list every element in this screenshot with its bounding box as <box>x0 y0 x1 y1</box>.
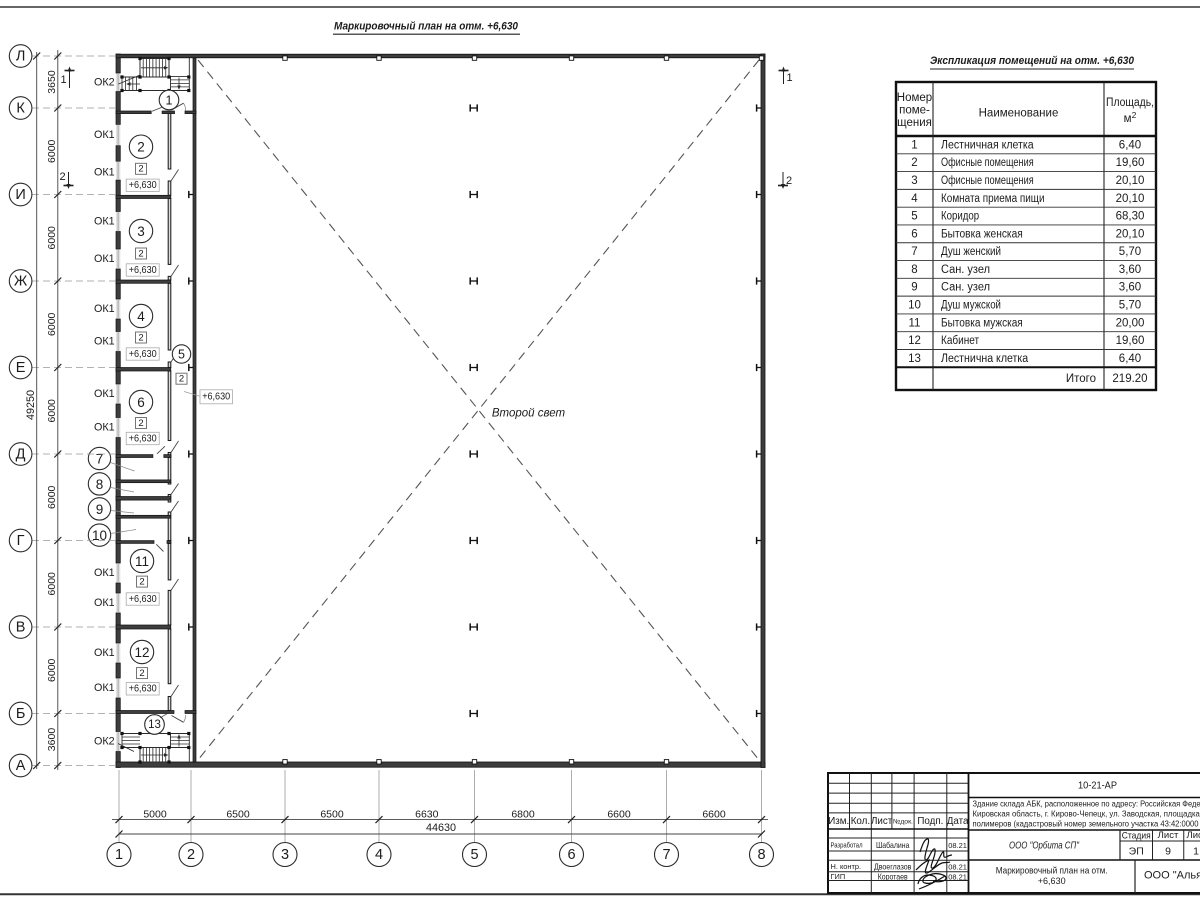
svg-text:2: 2 <box>138 418 143 429</box>
svg-text:щения: щения <box>897 117 932 129</box>
svg-text:Шабалина: Шабалина <box>876 840 910 850</box>
svg-text:6,40: 6,40 <box>1119 139 1141 151</box>
svg-text:поме-: поме- <box>899 105 930 117</box>
svg-text:+6,630: +6,630 <box>129 265 157 276</box>
svg-text:5: 5 <box>470 847 478 863</box>
svg-text:20,00: 20,00 <box>1116 317 1145 329</box>
svg-text:ОК1: ОК1 <box>94 129 115 141</box>
svg-text:6000: 6000 <box>46 485 58 509</box>
svg-text:9: 9 <box>96 502 104 517</box>
svg-text:Комната приема пищи: Комната приема пищи <box>941 193 1045 205</box>
svg-text:08.21: 08.21 <box>948 841 967 850</box>
svg-text:м2: м2 <box>1124 110 1137 125</box>
svg-text:20,10: 20,10 <box>1116 228 1145 240</box>
svg-text:Офисные помещения: Офисные помещения <box>941 157 1034 169</box>
svg-text:ОК1: ОК1 <box>94 567 115 579</box>
svg-text:Сан. узел: Сан. узел <box>941 282 990 294</box>
svg-text:ГИП: ГИП <box>831 872 846 881</box>
svg-text:Лестнична клетка: Лестнична клетка <box>941 353 1029 365</box>
svg-text:Подп.: Подп. <box>917 816 943 827</box>
svg-text:Лист: Лист <box>871 816 893 827</box>
svg-text:6: 6 <box>911 228 917 240</box>
svg-text:ОК1: ОК1 <box>94 647 115 659</box>
svg-text:1: 1 <box>115 847 123 863</box>
svg-text:2: 2 <box>911 157 917 169</box>
svg-text:Кировская область, г. Кирово-Ч: Кировская область, г. Кирово-Чепецк, ул.… <box>973 810 1200 819</box>
svg-text:Н. контр.: Н. контр. <box>831 862 862 871</box>
svg-text:6500: 6500 <box>226 809 250 821</box>
svg-text:6: 6 <box>567 847 575 863</box>
svg-text:Здание склада АБК, расположенн: Здание склада АБК, расположенное по адре… <box>973 799 1200 808</box>
svg-text:Г: Г <box>17 533 25 549</box>
svg-text:Бытовка мужская: Бытовка мужская <box>941 317 1023 329</box>
svg-text:2: 2 <box>187 847 195 863</box>
svg-text:Душ мужской: Душ мужской <box>941 300 1001 312</box>
svg-text:Кол.: Кол. <box>851 816 870 827</box>
svg-text:ОК1: ОК1 <box>94 303 115 315</box>
svg-text:Листов: Листов <box>1187 830 1200 841</box>
svg-text:08.21: 08.21 <box>948 873 967 882</box>
svg-text:8: 8 <box>757 847 765 863</box>
svg-text:1: 1 <box>911 139 917 151</box>
svg-text:Дата: Дата <box>947 816 969 827</box>
svg-text:4: 4 <box>375 847 383 863</box>
svg-text:7: 7 <box>911 246 917 258</box>
svg-text:+6,630: +6,630 <box>129 433 157 444</box>
svg-text:1: 1 <box>1193 846 1199 858</box>
svg-text:19,60: 19,60 <box>1116 335 1145 347</box>
svg-text:+6,630: +6,630 <box>202 391 230 402</box>
svg-text:10-21-АР: 10-21-АР <box>1078 780 1117 792</box>
svg-text:В: В <box>16 620 26 636</box>
svg-text:3600: 3600 <box>46 728 58 752</box>
svg-text:Второй свет: Второй свет <box>492 408 566 420</box>
svg-text:2: 2 <box>179 374 184 385</box>
svg-text:44630: 44630 <box>426 822 456 834</box>
svg-text:2: 2 <box>59 171 65 183</box>
svg-text:8: 8 <box>911 264 917 276</box>
svg-text:ОК1: ОК1 <box>94 422 115 434</box>
svg-text:№док.: №док. <box>893 819 913 826</box>
svg-text:4: 4 <box>137 309 145 324</box>
svg-text:8: 8 <box>96 477 104 492</box>
svg-text:6000: 6000 <box>46 312 58 336</box>
svg-text:13: 13 <box>908 353 921 365</box>
svg-text:4: 4 <box>911 193 918 205</box>
svg-text:Лестничная клетка: Лестничная клетка <box>941 139 1034 151</box>
svg-text:6000: 6000 <box>46 658 58 682</box>
svg-text:6,40: 6,40 <box>1119 353 1141 365</box>
svg-text:12: 12 <box>134 645 149 660</box>
svg-text:ООО "Орбита СП": ООО "Орбита СП" <box>1009 840 1079 852</box>
svg-text:Б: Б <box>16 706 26 722</box>
svg-text:2: 2 <box>786 175 792 187</box>
svg-text:08.21: 08.21 <box>948 863 967 872</box>
svg-text:1: 1 <box>166 94 173 108</box>
svg-text:2: 2 <box>138 332 143 343</box>
svg-text:2: 2 <box>139 577 144 588</box>
svg-text:полимеров (кадастровый номер з: полимеров (кадастровый номер земельного … <box>973 820 1200 829</box>
svg-text:Д: Д <box>16 447 26 463</box>
svg-text:Разработал: Разработал <box>831 841 863 850</box>
svg-text:11: 11 <box>135 554 149 569</box>
svg-text:6000: 6000 <box>46 226 58 250</box>
svg-text:10: 10 <box>908 300 921 312</box>
svg-text:Наименование: Наименование <box>979 108 1059 120</box>
svg-text:Номер: Номер <box>897 92 932 104</box>
svg-text:2: 2 <box>138 164 143 175</box>
svg-text:Душ женский: Душ женский <box>941 246 1001 258</box>
svg-text:Итого: Итого <box>1066 373 1096 385</box>
svg-text:Ж: Ж <box>14 274 28 290</box>
svg-text:5000: 5000 <box>143 809 167 821</box>
svg-text:Маркировочный план на отм. +6,: Маркировочный план на отм. +6,630 <box>334 21 518 33</box>
svg-text:Двоеглазов: Двоеглазов <box>874 862 912 872</box>
svg-text:Коридор: Коридор <box>941 211 979 223</box>
svg-text:3650: 3650 <box>46 70 58 94</box>
svg-text:Офисные помещения: Офисные помещения <box>941 175 1034 187</box>
svg-text:6630: 6630 <box>415 809 439 821</box>
svg-text:5,70: 5,70 <box>1119 246 1141 258</box>
svg-text:Л: Л <box>16 49 26 65</box>
svg-text:А: А <box>16 758 26 774</box>
svg-text:Кабинет: Кабинет <box>941 335 980 347</box>
svg-text:3: 3 <box>911 175 917 187</box>
svg-text:6000: 6000 <box>46 139 58 163</box>
svg-text:Лист: Лист <box>1158 830 1179 841</box>
svg-text:3: 3 <box>281 847 289 863</box>
svg-text:И: И <box>15 187 25 203</box>
svg-text:К: К <box>16 101 25 117</box>
svg-text:7: 7 <box>662 847 670 863</box>
svg-text:12: 12 <box>908 335 921 347</box>
svg-text:ОК1: ОК1 <box>94 253 115 265</box>
svg-text:2: 2 <box>138 248 143 259</box>
svg-text:219.20: 219.20 <box>1112 373 1147 385</box>
svg-text:9: 9 <box>911 282 917 294</box>
svg-text:5: 5 <box>178 348 185 362</box>
svg-text:ООО "Альянс: ООО "Альянс <box>1144 870 1200 882</box>
svg-text:2: 2 <box>137 140 145 155</box>
svg-text:6: 6 <box>137 395 145 410</box>
svg-text:Е: Е <box>16 360 26 376</box>
svg-text:9: 9 <box>1165 846 1171 858</box>
svg-text:5: 5 <box>911 211 917 223</box>
svg-text:6500: 6500 <box>320 809 344 821</box>
svg-text:Коротаев: Коротаев <box>878 872 908 882</box>
svg-text:+6,630: +6,630 <box>1038 876 1066 886</box>
svg-text:6600: 6600 <box>607 809 631 821</box>
svg-text:13: 13 <box>148 719 161 731</box>
svg-text:ОК1: ОК1 <box>94 336 115 348</box>
svg-text:6600: 6600 <box>702 809 726 821</box>
svg-text:ОК1: ОК1 <box>94 167 115 179</box>
svg-text:+6,630: +6,630 <box>129 349 157 360</box>
svg-text:6000: 6000 <box>46 572 58 596</box>
svg-text:ОК2: ОК2 <box>94 77 115 89</box>
svg-text:ОК1: ОК1 <box>94 388 115 400</box>
svg-text:Маркировочный план на отм.: Маркировочный план на отм. <box>996 866 1108 876</box>
svg-text:3,60: 3,60 <box>1119 264 1141 276</box>
svg-text:Экспликация помещений на отм.: Экспликация помещений на отм. +6,630 <box>930 55 1135 67</box>
svg-text:6800: 6800 <box>511 809 535 821</box>
svg-text:Стадия: Стадия <box>1122 831 1151 841</box>
svg-text:49250: 49250 <box>25 390 37 420</box>
svg-text:ОК2: ОК2 <box>94 736 115 748</box>
svg-text:Площадь,: Площадь, <box>1106 97 1154 109</box>
svg-text:+6,630: +6,630 <box>129 180 157 191</box>
svg-text:Изм.: Изм. <box>828 816 849 827</box>
svg-text:ЭП: ЭП <box>1129 846 1144 858</box>
svg-text:ОК1: ОК1 <box>94 216 115 228</box>
svg-text:6000: 6000 <box>46 399 58 423</box>
svg-text:Сан. узел: Сан. узел <box>941 264 990 276</box>
svg-text:3: 3 <box>137 224 145 239</box>
svg-text:20,10: 20,10 <box>1116 175 1145 187</box>
svg-text:ОК1: ОК1 <box>94 597 115 609</box>
svg-text:68,30: 68,30 <box>1116 211 1145 223</box>
svg-text:3,60: 3,60 <box>1119 282 1141 294</box>
svg-text:1: 1 <box>786 72 792 84</box>
svg-text:+6,630: +6,630 <box>129 684 157 695</box>
svg-text:5,70: 5,70 <box>1119 300 1141 312</box>
svg-text:20,10: 20,10 <box>1116 193 1145 205</box>
svg-text:1: 1 <box>60 74 66 86</box>
svg-text:19,60: 19,60 <box>1116 157 1145 169</box>
svg-text:ОК1: ОК1 <box>94 682 115 694</box>
svg-text:11: 11 <box>909 317 921 329</box>
svg-text:+6,630: +6,630 <box>129 594 157 605</box>
svg-text:Бытовка женская: Бытовка женская <box>941 228 1023 240</box>
svg-text:2: 2 <box>139 668 144 679</box>
